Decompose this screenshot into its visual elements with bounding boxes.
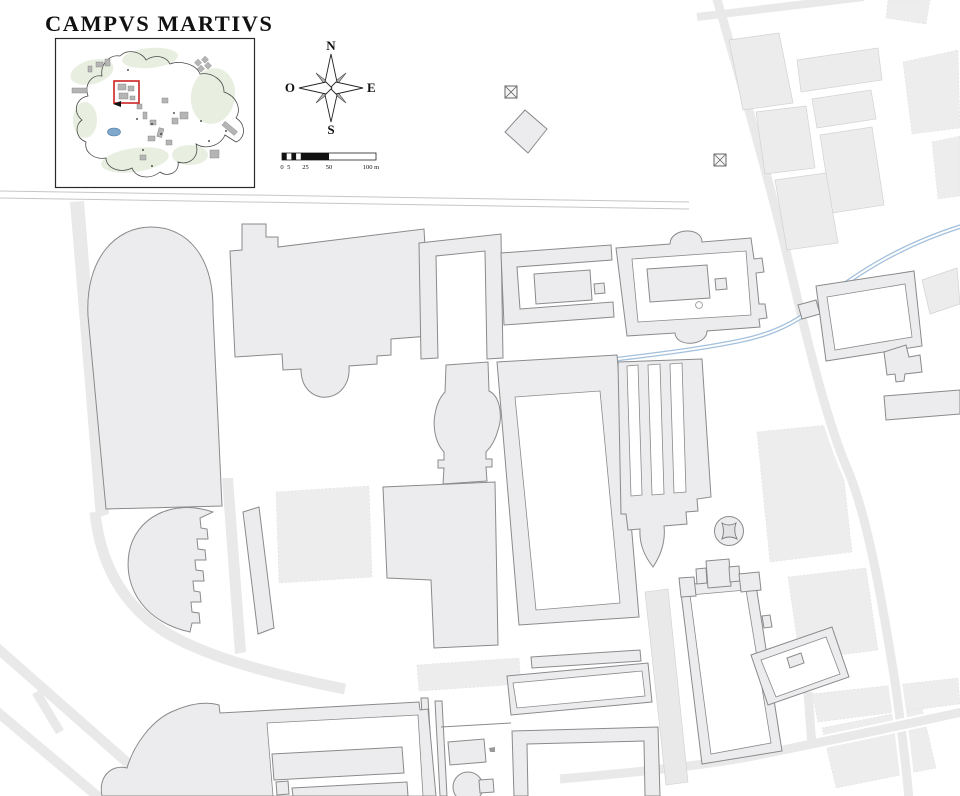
south-enclosure <box>512 727 660 796</box>
temple-enclosure-middle <box>501 245 614 325</box>
temple-cella <box>534 270 592 304</box>
inset-building <box>119 93 128 99</box>
scale-label: 0 <box>280 164 283 171</box>
compass-label-north: N <box>326 38 336 53</box>
basin-enclosure <box>507 663 652 715</box>
inset-building <box>137 104 142 109</box>
scale-bar-segment <box>301 153 329 160</box>
temple-altar <box>594 283 605 294</box>
scale-label: 25 <box>302 164 309 171</box>
green-patch <box>172 145 208 165</box>
temple-well <box>696 302 703 309</box>
inset-building <box>118 84 126 90</box>
inset-building <box>72 88 87 93</box>
baths-complex-north <box>230 224 430 397</box>
divorum-tab <box>762 615 772 628</box>
fuzzy-block <box>903 50 960 134</box>
fuzzy-block <box>276 486 372 583</box>
fuzzy-block <box>886 0 930 24</box>
round-exedra <box>453 772 483 796</box>
exedra-annex <box>479 779 494 793</box>
small-block <box>922 268 960 314</box>
inset-building <box>180 112 188 119</box>
room-wall <box>441 723 511 727</box>
compass-rose: N S E O <box>285 38 376 137</box>
temple-cella <box>647 265 710 302</box>
east-roadside-buildings <box>816 268 960 420</box>
road-edge <box>0 191 689 202</box>
insula-block <box>797 48 882 92</box>
minerva-court <box>761 637 840 697</box>
compass-point-west <box>299 82 332 94</box>
road-mid-south <box>222 478 246 654</box>
inset-building <box>130 96 135 100</box>
compass-label-west: O <box>285 80 295 95</box>
porticus-room <box>276 781 289 795</box>
campus-martius-map-page: N S E O 0 5 25 50 100 m CAMPVS MARTIVS <box>0 0 960 796</box>
compass-cardinal-points <box>299 54 363 122</box>
sliver-portico <box>243 507 274 634</box>
field-monuments <box>505 86 726 166</box>
l-shaped-building <box>884 345 922 382</box>
inset-pond <box>108 128 121 136</box>
baths-of-agrippa-block <box>383 482 498 648</box>
divorum-gate <box>706 559 731 588</box>
inset-building <box>148 136 155 141</box>
compass-label-east: E <box>367 80 376 95</box>
temple-enclosure-east <box>616 231 767 343</box>
divorum-corner <box>739 572 761 592</box>
inset-building <box>172 118 178 124</box>
main-map: N S E O 0 5 25 50 100 m CAMPVS MARTIVS <box>0 0 960 796</box>
temple-altar <box>715 278 727 290</box>
insula-block <box>812 90 876 128</box>
road-edge <box>0 198 689 209</box>
small-marker <box>489 747 495 752</box>
saepta-enclosure <box>497 355 639 625</box>
inset-building <box>150 120 156 125</box>
inset-building <box>143 112 147 119</box>
pantheon-rotunda-building <box>434 362 500 484</box>
round-monument <box>715 517 744 546</box>
long-building <box>884 390 960 420</box>
fuzzy-block <box>932 136 960 199</box>
fuzzy-block <box>417 658 521 691</box>
round-monument-core <box>722 523 737 539</box>
inset-building <box>210 150 219 158</box>
insula-block <box>756 106 815 174</box>
inset-building <box>88 66 92 72</box>
corridor-wall <box>435 701 447 796</box>
road-southwest-a <box>0 646 138 772</box>
scale-label: 100 m <box>363 164 379 171</box>
scale-label: 5 <box>287 164 290 171</box>
small-room <box>448 739 486 765</box>
scale-bar-segment <box>282 153 287 160</box>
portico-enclosure-west <box>419 234 503 359</box>
divorum-gate-flank <box>696 568 707 584</box>
inset-building <box>140 155 146 160</box>
divorum-gate-flank <box>729 566 740 582</box>
inset-building <box>162 98 168 103</box>
inset-building <box>128 86 134 91</box>
inset-map <box>56 39 255 188</box>
rotated-square-building <box>505 110 547 153</box>
inset-building <box>166 140 172 145</box>
road-southeast-link <box>808 692 812 747</box>
inset-building <box>105 59 110 66</box>
scale-bar-segment <box>291 153 296 160</box>
inset-building <box>96 62 103 67</box>
scale-bar: 0 5 25 50 100 m <box>280 153 379 171</box>
compass-label-south: S <box>327 122 334 137</box>
page-title: CAMPVS MARTIVS <box>45 11 273 36</box>
southwest-porticus-complex <box>101 702 436 796</box>
scale-label: 50 <box>326 164 333 171</box>
compass-point-east <box>330 82 363 94</box>
stadium-building <box>88 227 222 509</box>
divorum-corner <box>679 577 696 597</box>
